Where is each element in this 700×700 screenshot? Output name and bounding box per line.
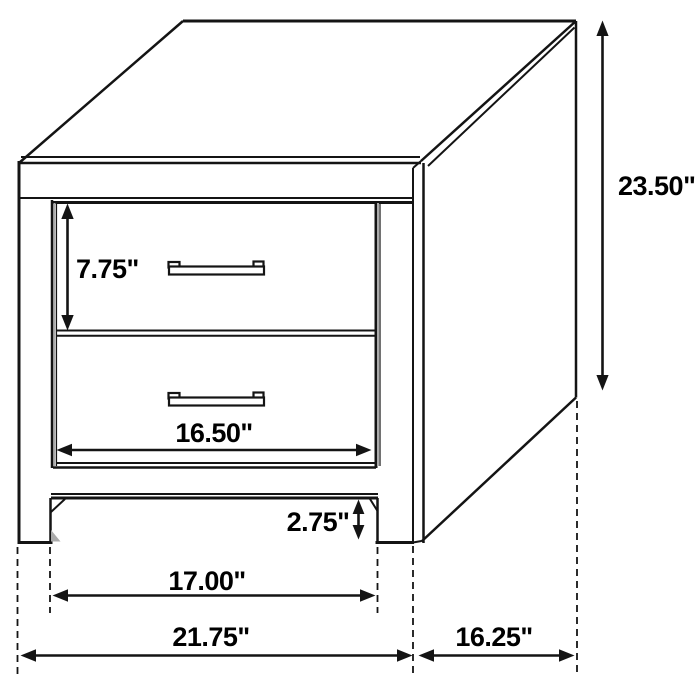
dim-leg-clearance: 2.75": [287, 500, 365, 540]
arrowhead-right: [559, 649, 575, 661]
arrowhead-left: [53, 589, 69, 601]
nightstand-dimension-diagram: 7.75" 16.50" 2.75" 17.00" 21.75": [0, 0, 700, 700]
dim-label-overall-depth: 16.25": [455, 622, 532, 652]
handle-bar: [169, 398, 264, 406]
dim-drawer-height: 7.75": [61, 204, 139, 331]
dim-between-legs: 17.00": [53, 566, 376, 602]
dim-label-drawer-width: 16.50": [175, 418, 252, 448]
drawer-1-handle: [169, 262, 265, 275]
cabinet-light-lines: [19, 28, 575, 543]
dim-label-drawer-height: 7.75": [76, 254, 139, 284]
dim-label-overall-width: 21.75": [172, 622, 249, 652]
arrowhead-right: [356, 444, 372, 456]
arrowhead-up: [596, 21, 608, 37]
arrowhead-down: [596, 375, 608, 391]
left-leg-shadow: [51, 530, 61, 542]
dim-label-between-legs: 17.00": [168, 566, 245, 596]
arrowhead-right: [397, 649, 413, 661]
dim-drawer-width: 16.50": [57, 418, 372, 456]
arrowhead-up: [353, 500, 365, 515]
arrowhead-left: [21, 649, 37, 661]
arrowhead-down: [353, 525, 365, 540]
dim-label-overall-height: 23.50": [618, 171, 695, 201]
handle-bar: [169, 267, 264, 275]
arrowhead-left: [57, 444, 73, 456]
arrowhead-up: [61, 204, 73, 220]
arrowhead-right: [360, 589, 376, 601]
drawer-2-handle: [169, 393, 265, 406]
arrowhead-down: [61, 315, 73, 331]
diagram-canvas: 7.75" 16.50" 2.75" 17.00" 21.75": [0, 0, 700, 700]
dim-overall-depth: 16.25": [419, 622, 575, 662]
dim-overall-height: 23.50": [596, 21, 695, 391]
dim-overall-width: 21.75": [21, 622, 413, 662]
arrowhead-left: [419, 649, 435, 661]
dim-label-leg-clearance: 2.75": [287, 507, 350, 537]
